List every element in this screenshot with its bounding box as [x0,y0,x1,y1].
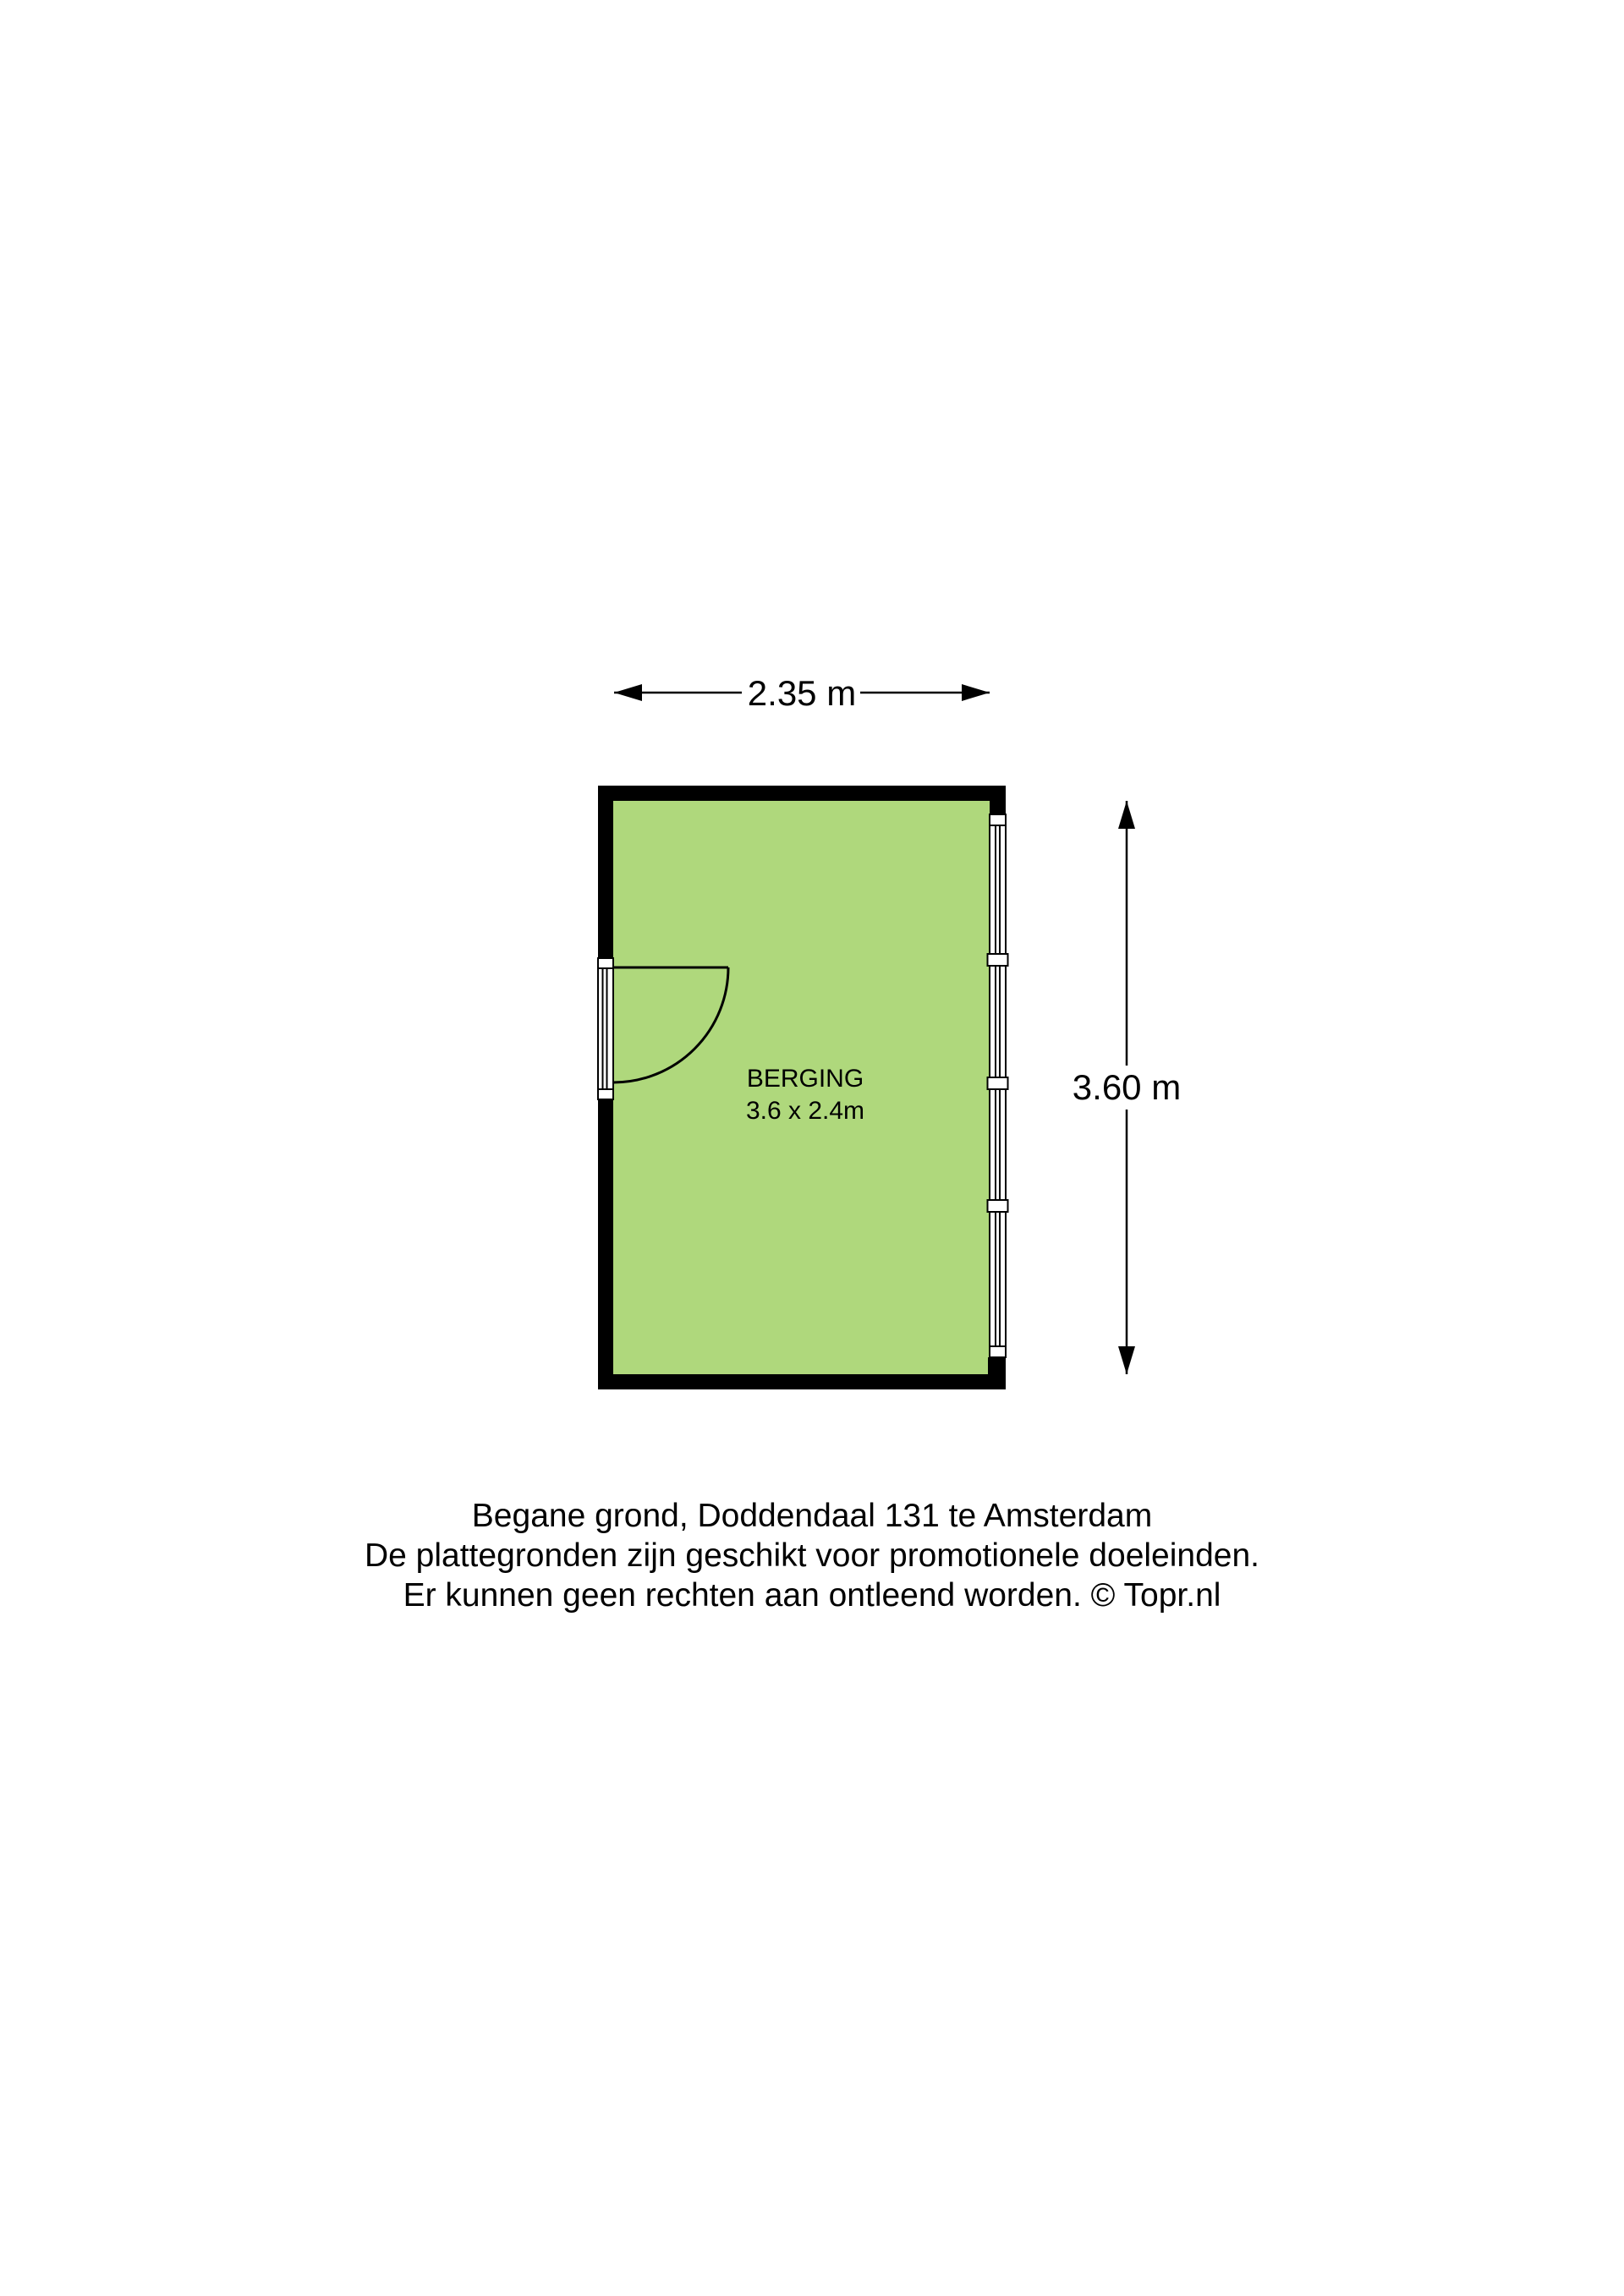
arrow-right-icon [962,684,990,701]
window-mullion-1 [988,954,1008,966]
floorplan-canvas: 2.35 m 3.60 m BERGING 3.6 x 2.4m Begane … [0,0,1624,2296]
room-size-label: 3.6 x 2.4m [746,1097,864,1125]
width-dimension-label: 2.35 m [748,673,856,713]
door-frame [598,958,613,1099]
wall-right-bottom-corner [988,1357,1006,1389]
wall-right-top-corner [990,786,1006,814]
arrow-up-icon [1118,801,1135,829]
wall-left-lower [598,1099,613,1389]
room-name-label: BERGING [747,1065,864,1093]
caption-line-2: De plattegronden zijn geschikt voor prom… [365,1537,1259,1574]
door-end-cap-bottom [598,1089,613,1099]
wall-top [598,786,1006,801]
window-end-cap-top [990,814,1006,825]
height-dimension-label: 3.60 m [1073,1067,1181,1107]
window-mullion-3 [988,1200,1008,1212]
caption: Begane grond, Doddendaal 131 te Amsterda… [365,1498,1259,1614]
window-right [988,814,1008,1357]
floorplan-page: 2.35 m 3.60 m BERGING 3.6 x 2.4m Begane … [0,0,1624,2296]
wall-left-upper [598,786,613,958]
height-dimension: 3.60 m [1073,801,1181,1374]
window-end-cap-bottom [990,1346,1006,1357]
door-end-cap-top [598,958,613,968]
window-mullion-2 [988,1077,1008,1089]
arrow-down-icon [1118,1346,1135,1374]
arrow-left-icon [614,684,642,701]
caption-line-3: Er kunnen geen rechten aan ontleend word… [403,1577,1221,1614]
caption-line-1: Begane grond, Doddendaal 131 te Amsterda… [472,1498,1152,1534]
width-dimension: 2.35 m [614,673,990,713]
wall-bottom [598,1374,1006,1389]
